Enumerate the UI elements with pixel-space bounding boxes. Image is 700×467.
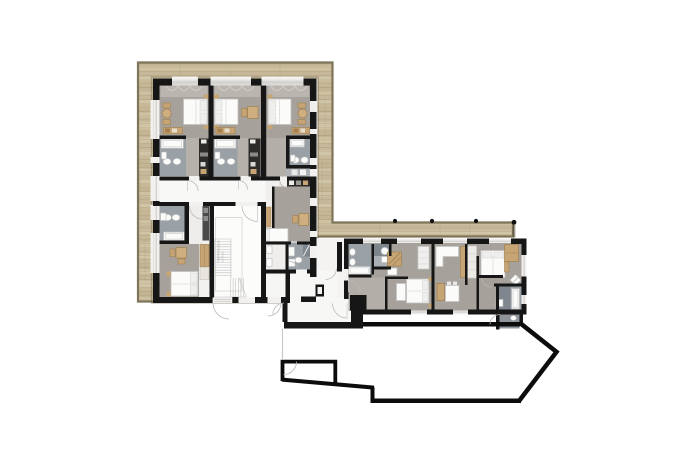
svg-text:TREPPENHAUS: TREPPENHAUS	[217, 240, 221, 263]
svg-text:14.93 m2: 14.93 m2	[221, 251, 225, 262]
